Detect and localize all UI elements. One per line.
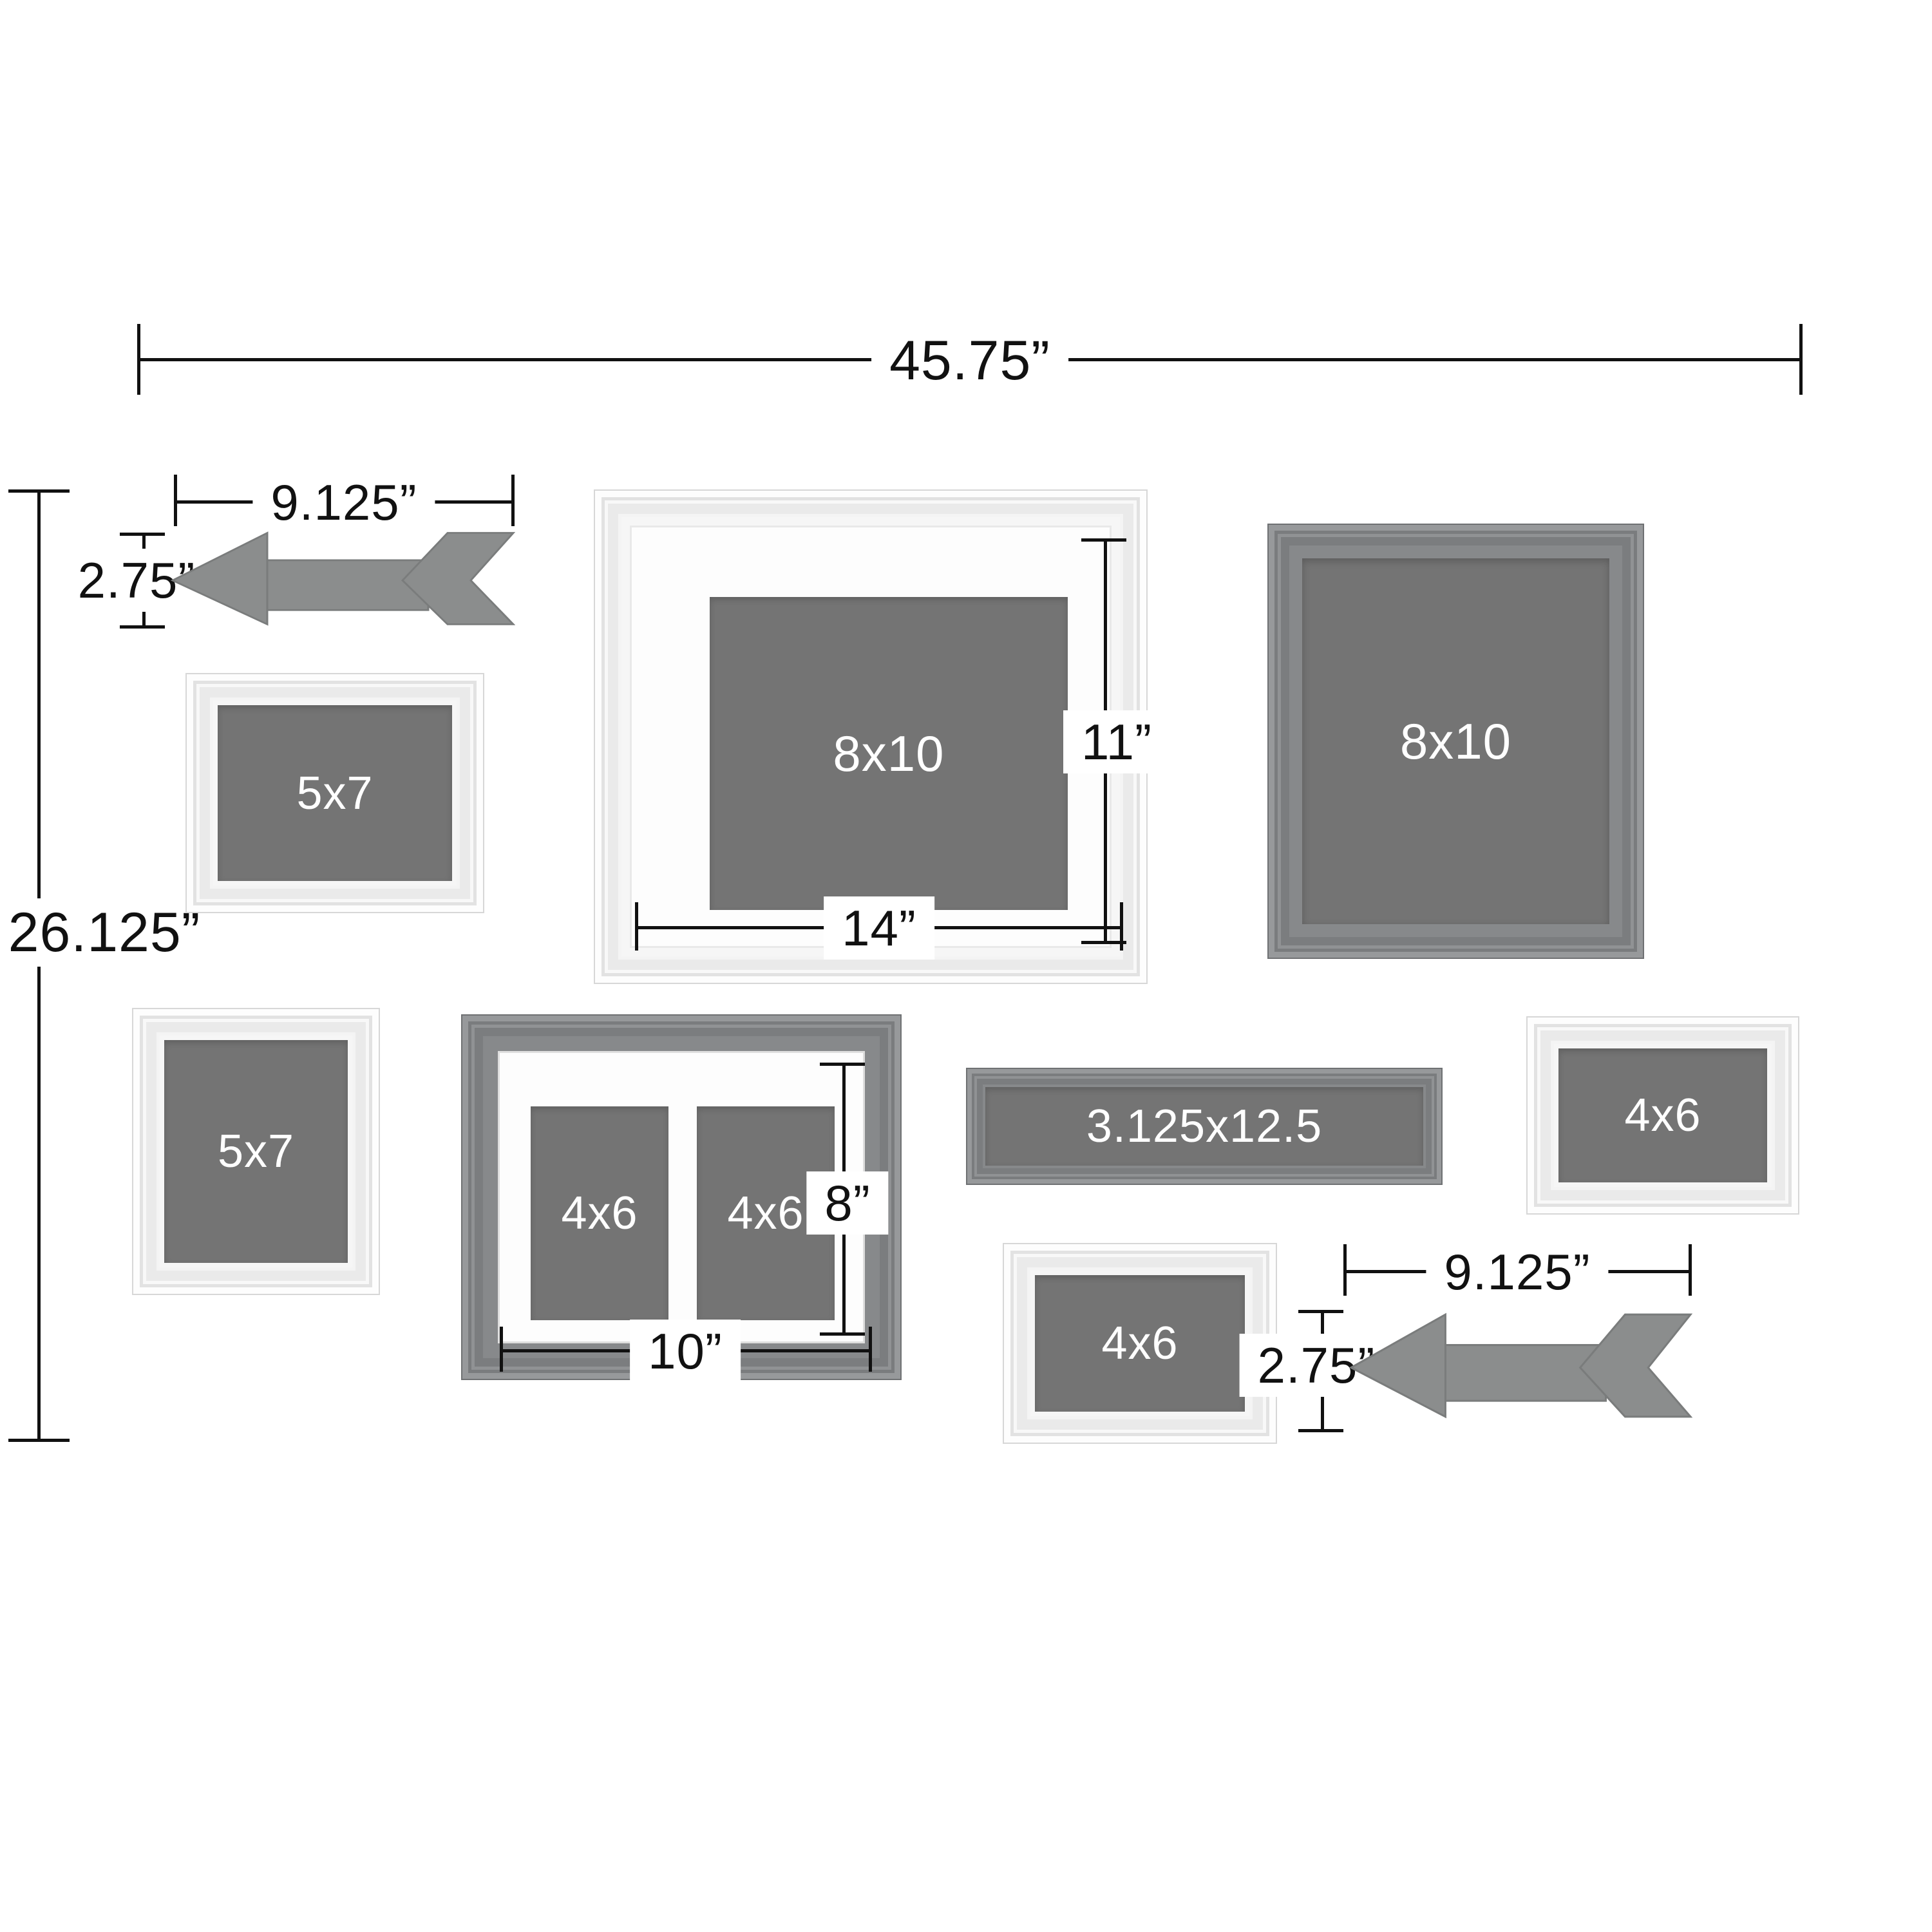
dimension-tick	[511, 475, 515, 526]
dimension-tick	[1689, 1244, 1692, 1296]
dimension-tick	[1298, 1310, 1343, 1313]
frame-size-label: 4x6	[1624, 1089, 1701, 1142]
gallery-wall-dimension-diagram: 45.75” 26.125” 9.125” 2.75” 5x7 8x10	[0, 0, 1932, 1932]
frame-ledge-3125x125: 3.125x12.5	[966, 1068, 1443, 1185]
photo-opening: 8x10	[710, 597, 1068, 910]
dimension-tick	[174, 475, 177, 526]
photo-opening: 5x7	[164, 1040, 348, 1263]
dimension-tick	[1343, 1244, 1347, 1296]
dimension-tick	[1081, 538, 1126, 542]
dimension-tick	[635, 902, 638, 951]
frame-4x6-bottom: 4x6	[1003, 1243, 1277, 1444]
collage-width-label: 10”	[630, 1320, 741, 1383]
photo-opening: 4x6	[531, 1106, 668, 1320]
dimension-tick	[1298, 1429, 1343, 1432]
dimension-tick	[1799, 324, 1803, 395]
frame-4x6-right: 4x6	[1526, 1016, 1799, 1215]
arrow-decor-icon	[171, 529, 515, 627]
overall-width-label: 45.75”	[871, 327, 1068, 395]
frame-8x10-gray: 8x10	[1267, 524, 1644, 959]
dimension-tick	[137, 324, 140, 395]
frame-size-label: 5x7	[218, 1125, 294, 1178]
dimension-tick	[120, 533, 165, 536]
dimension-tick	[8, 1439, 70, 1442]
dimension-tick	[820, 1332, 865, 1336]
arrow-width-label: 9.125”	[252, 471, 435, 534]
dimension-tick	[820, 1063, 865, 1066]
frame-size-label: 8x10	[1400, 712, 1511, 771]
arrow-decor-icon	[1349, 1311, 1692, 1420]
photo-opening: 8x10	[1302, 558, 1609, 924]
arrow-width-label: 9.125”	[1426, 1240, 1608, 1303]
frame-size-label: 4x6	[727, 1187, 804, 1240]
frame-size-label: 4x6	[561, 1187, 638, 1240]
dimension-tick	[500, 1327, 503, 1372]
photo-opening: 4x6	[1035, 1275, 1245, 1412]
frame-size-label: 4x6	[1101, 1317, 1178, 1370]
dimension-tick	[869, 1327, 872, 1372]
mat-width-label: 14”	[824, 896, 934, 960]
dimension-tick	[8, 489, 70, 493]
frame-5x7-left: 5x7	[132, 1008, 380, 1295]
frame-size-label: 3.125x12.5	[1086, 1100, 1322, 1153]
frame-size-label: 5x7	[296, 767, 373, 820]
mat-height-label: 11”	[1063, 710, 1170, 773]
frame-5x7-top: 5x7	[185, 673, 484, 913]
frame-size-label: 8x10	[833, 724, 944, 783]
collage-height-label: 8”	[806, 1171, 888, 1235]
dimension-tick	[1120, 902, 1123, 951]
photo-opening: 5x7	[218, 705, 452, 881]
photo-opening: 3.125x12.5	[985, 1087, 1423, 1166]
dimension-tick	[120, 625, 165, 629]
photo-opening: 4x6	[1558, 1048, 1767, 1182]
